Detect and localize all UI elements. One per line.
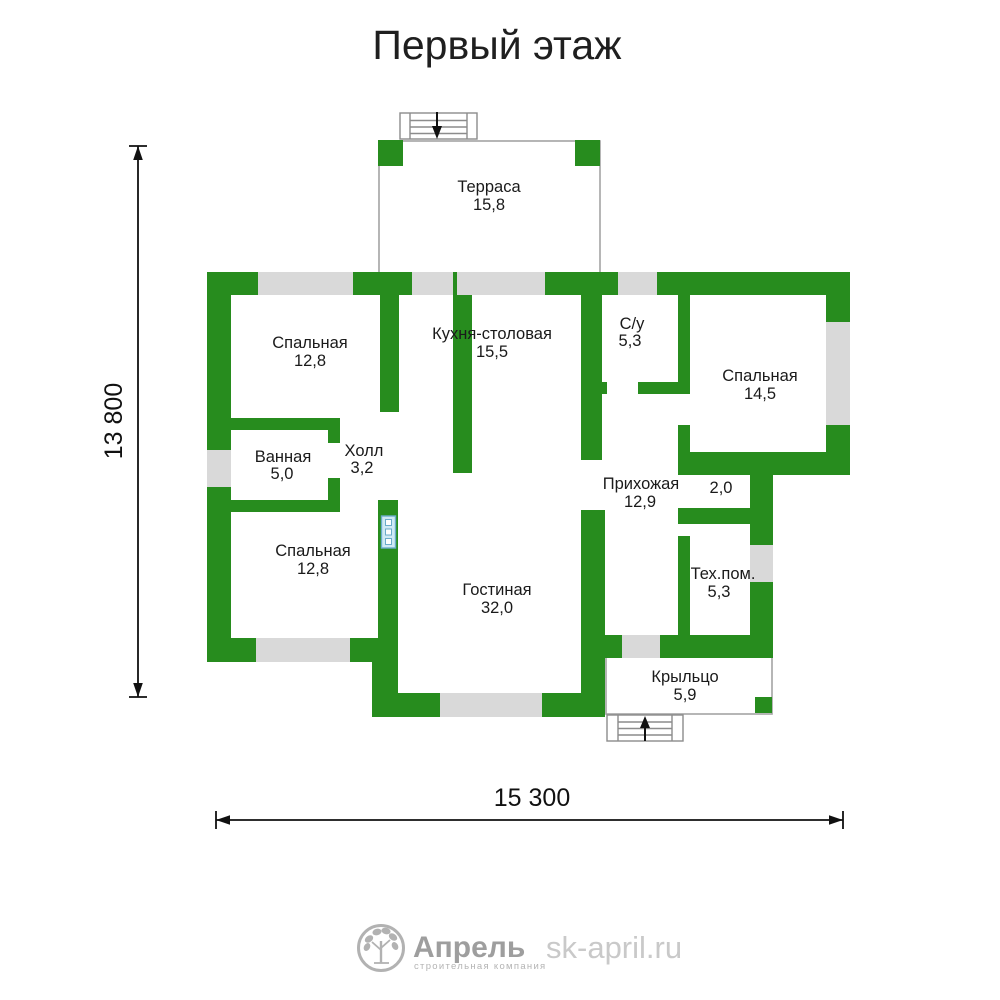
brand-tagline: строительная компания [414, 961, 547, 972]
window [826, 322, 850, 425]
porch-stairs [607, 715, 683, 741]
wall-segment [678, 425, 690, 452]
room-area-entryhall: 12,9 [624, 493, 656, 511]
room-label-techroom: Тех.пом. [691, 565, 756, 583]
window [457, 272, 545, 295]
wall-segment [328, 418, 340, 443]
wall-segment [678, 452, 850, 475]
room-label-bedroom-topleft: Спальная [272, 334, 347, 352]
wall-segment [231, 500, 340, 512]
room-area-closet: 2,0 [710, 479, 733, 497]
dimension-horizontal: 15 300 [216, 784, 843, 829]
room-label-livingroom: Гостиная [462, 581, 531, 599]
room-area-hall: 3,2 [351, 459, 374, 477]
room-label-hall: Холл [345, 442, 384, 460]
dimension-height-label: 13 800 [100, 383, 128, 459]
wall-segment [231, 418, 340, 430]
brand-website: sk-april.ru [546, 930, 682, 965]
wall-segment [581, 382, 607, 394]
wall-segment [678, 536, 690, 635]
tree-icon [362, 927, 399, 963]
dimension-vertical: 13 800 [100, 146, 147, 697]
room-label-bedroom-right: Спальная [722, 367, 797, 385]
room-area-terrace: 15,8 [473, 196, 505, 214]
floor-plan-drawing: Первый этаж [0, 0, 1000, 1000]
wall-segment [638, 382, 690, 394]
wall-segment [581, 295, 602, 460]
window [618, 272, 657, 295]
terrace-post [378, 140, 403, 166]
room-area-kitchen: 15,5 [476, 343, 508, 361]
room-label-wc: С/у [620, 315, 646, 333]
terrace-post [575, 140, 600, 166]
wall-segment [380, 295, 399, 412]
brand-name: Апрель [413, 931, 525, 964]
room-area-bathroom: 5,0 [271, 465, 294, 483]
room-label-bedroom-bottomleft: Спальная [275, 542, 350, 560]
porch-post [755, 697, 772, 713]
room-area-livingroom: 32,0 [481, 599, 513, 617]
room-area-bedroom-right: 14,5 [744, 385, 776, 403]
radiator [382, 516, 396, 548]
window [440, 693, 542, 717]
wall-segment [453, 295, 472, 473]
room-area-bedroom-bottomleft: 12,8 [297, 560, 329, 578]
footer-logo: Апрель строительная компания sk-april.ru [359, 926, 683, 973]
room-area-techroom: 5,3 [708, 583, 731, 601]
wall-segment [581, 510, 605, 717]
window [258, 272, 353, 295]
room-label-bathroom: Ванная [255, 448, 312, 466]
window [412, 272, 453, 295]
room-area-wc: 5,3 [619, 332, 642, 350]
room-area-bedroom-topleft: 12,8 [294, 352, 326, 370]
window [256, 638, 350, 662]
door-opening [622, 635, 660, 658]
wall-segment [678, 508, 750, 524]
wall-segment [678, 295, 690, 382]
dimension-width-label: 15 300 [494, 784, 570, 812]
page-title: Первый этаж [372, 22, 622, 68]
room-label-entryhall: Прихожая [603, 475, 679, 493]
terrace-stairs [400, 112, 477, 139]
window [207, 450, 231, 487]
room-label-terrace: Терраса [457, 178, 521, 196]
room-label-kitchen: Кухня-столовая [432, 325, 552, 343]
floor-plan-page: Первый этаж [0, 0, 1000, 1000]
room-area-porch: 5,9 [674, 686, 697, 704]
room-label-porch: Крыльцо [651, 668, 718, 686]
